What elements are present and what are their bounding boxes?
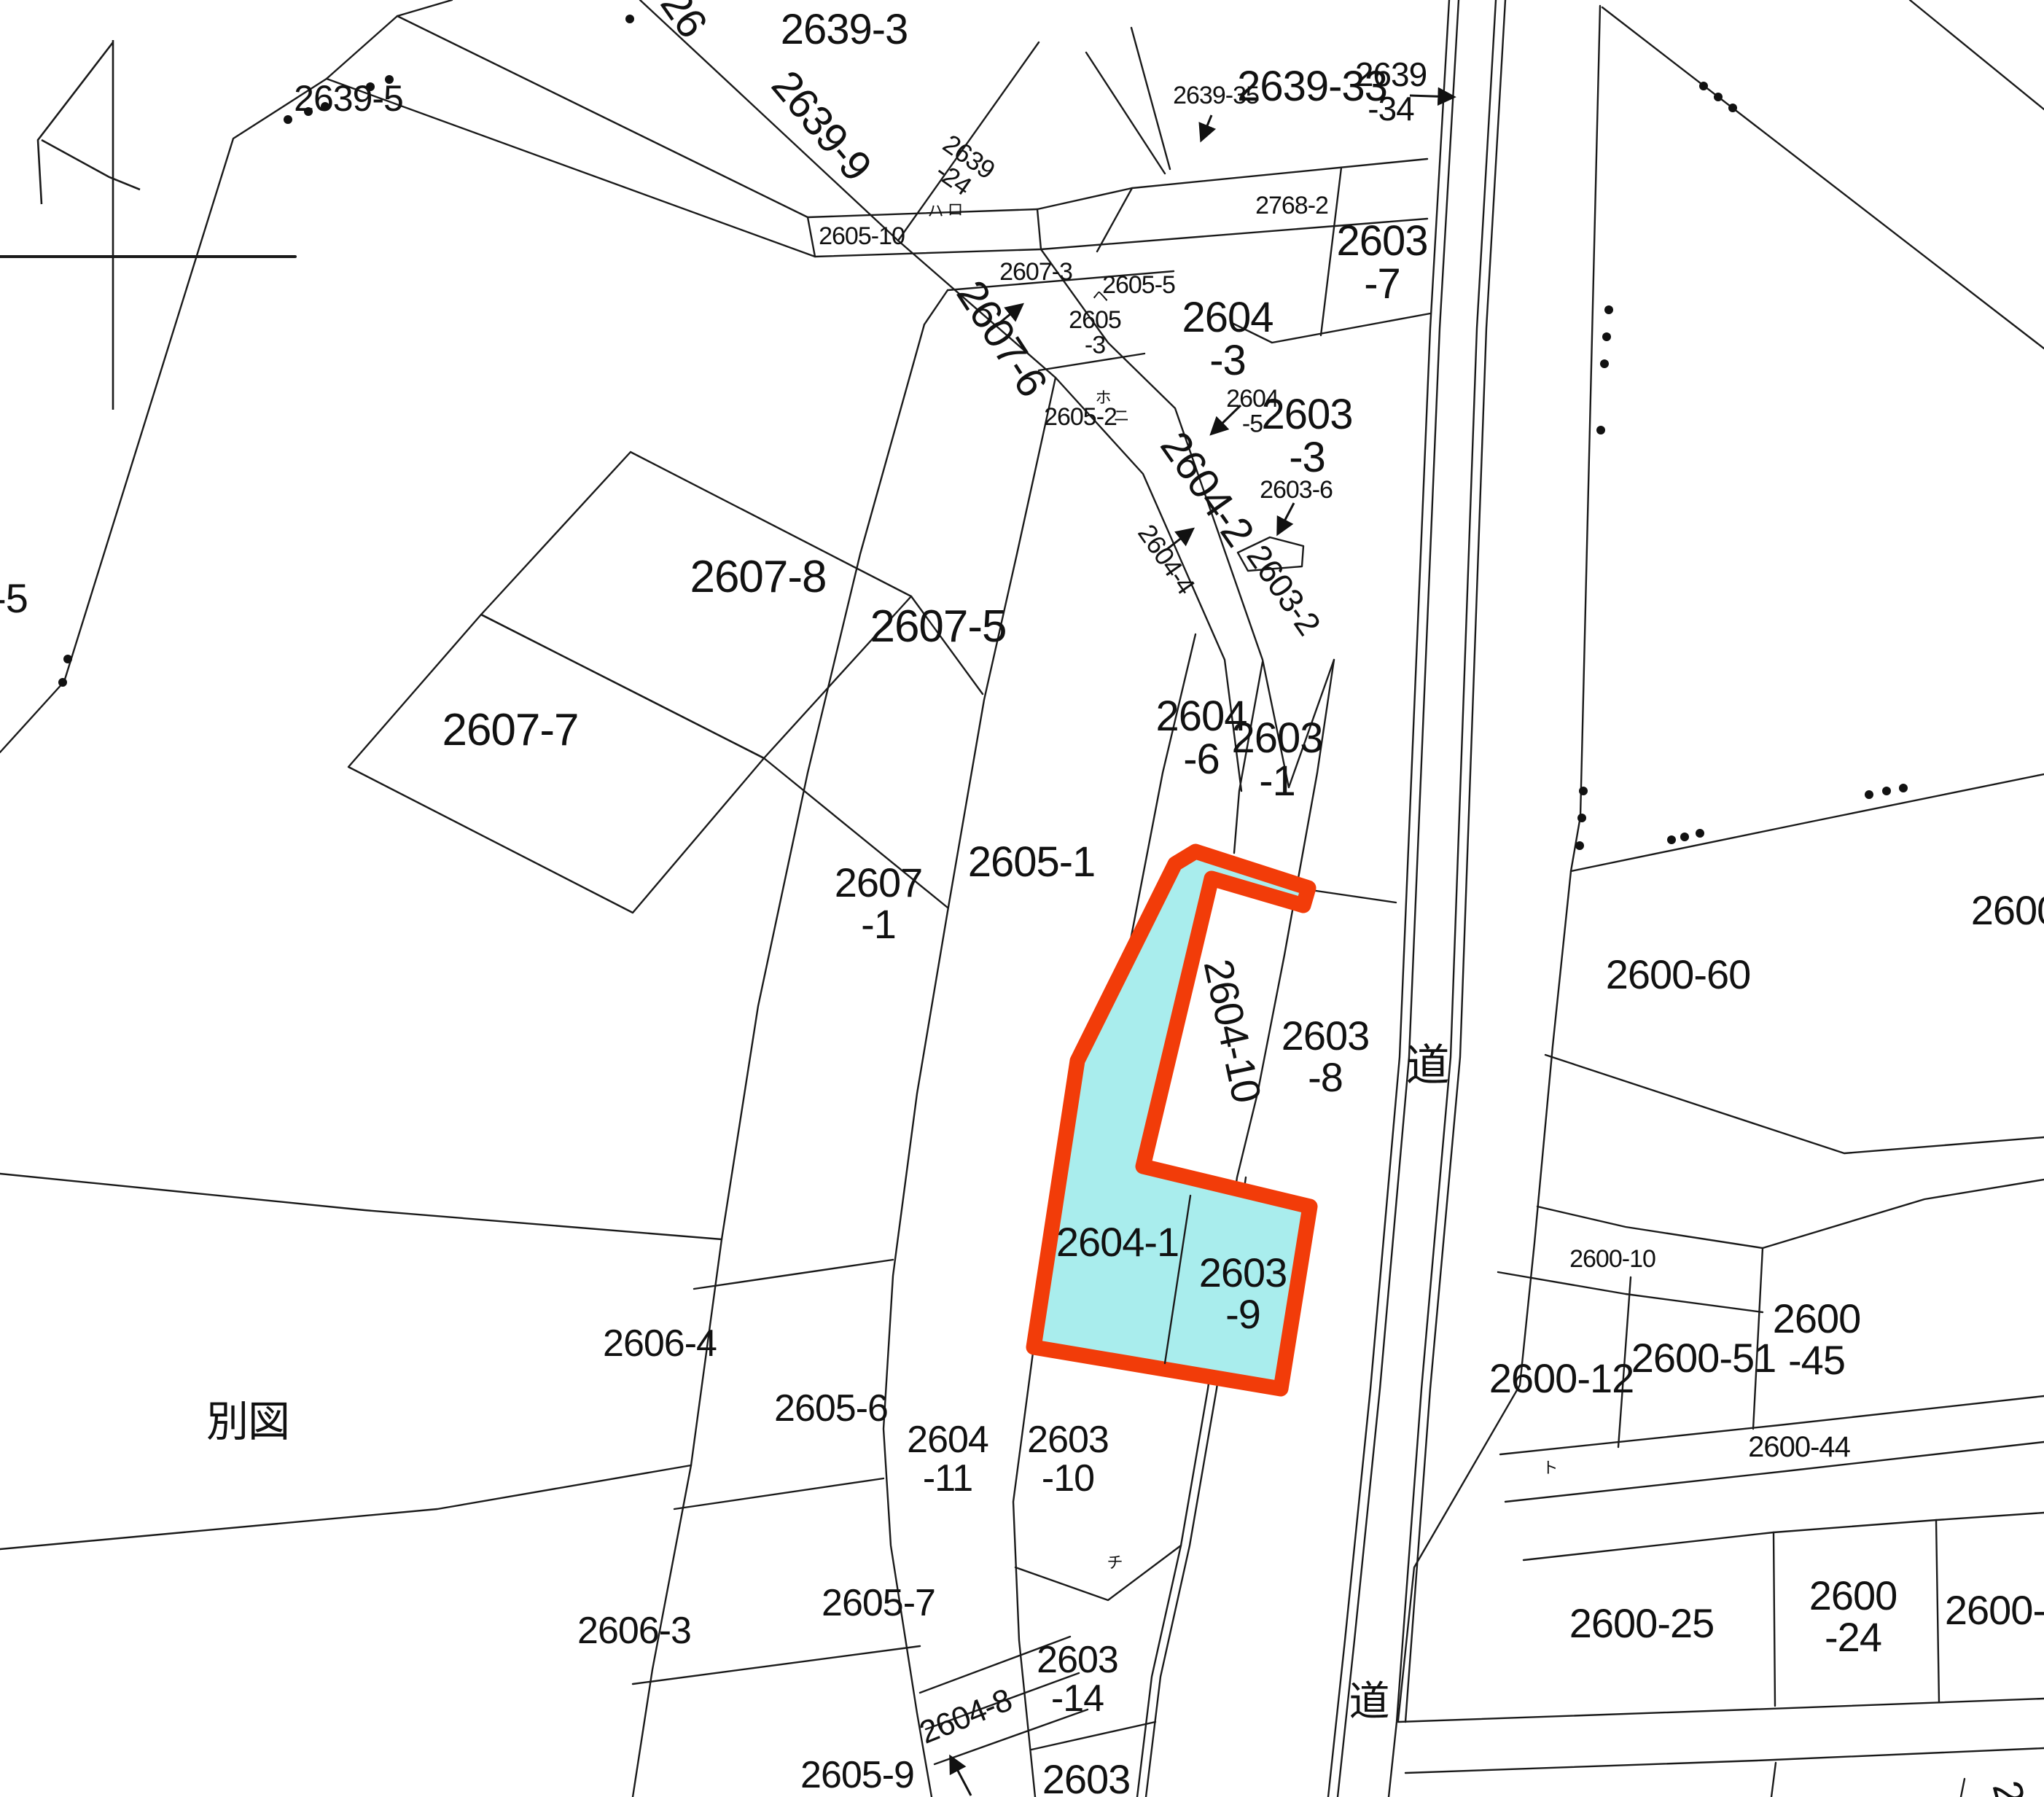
parcel-label-2600-12: 2600-12 <box>1489 1355 1634 1401</box>
cadastral-map-canvas: 2639-3262639-92639-52639-352639-332639-3… <box>0 0 2044 1797</box>
north-arrow-icon <box>0 40 295 410</box>
parcel-label-2600-60: 2600-60 <box>1606 951 1751 997</box>
parcel-label-2768-2: 2768-2 <box>1255 192 1328 219</box>
parcel-label-2606-3: 2606-3 <box>577 1610 691 1652</box>
arrow-2639-35 <box>1201 115 1212 140</box>
parcel-label-2639-3: 2639-3 <box>781 6 908 53</box>
parcel-label-2604-10: 2604-10 <box>1195 955 1271 1106</box>
parcel-label-pt-to: ト <box>1542 1459 1557 1477</box>
parcel-boundary-lines <box>0 0 1430 1797</box>
parcel-label-2600-edge: 2600 <box>1971 887 2044 933</box>
parcel-label-pt-he: ヘ <box>1092 287 1107 305</box>
parcel-label-2600-cut: 2600- <box>1945 1587 2044 1633</box>
parcel-label-2607-8: 2607-8 <box>690 552 826 602</box>
parcel-label-road-top: 道 <box>1406 1041 1449 1090</box>
right-block-lines <box>1398 0 2044 1797</box>
parcel-label-2600-51: 2600-51 <box>1631 1335 1776 1381</box>
parcel-label-2639-34: 2639-34 <box>1355 55 1427 128</box>
parcel-label-2600-45: 2600-45 <box>1773 1295 1861 1383</box>
parcel-label-2603-2: 2603-2 <box>1239 538 1327 642</box>
parcel-label-pt-chi: チ <box>1107 1554 1122 1572</box>
parcel-label-2605-7: 2605-7 <box>822 1582 935 1624</box>
arrow-2603-6 <box>1278 503 1294 534</box>
parcel-label-2639-5: 2639-5 <box>294 78 403 119</box>
arrow-2604-8 <box>951 1757 971 1796</box>
parcel-label-pt-ho: ホ <box>1095 389 1110 407</box>
parcel-label-2600-44: 2600-44 <box>1748 1431 1851 1463</box>
parcel-label-26-partial: 26 <box>651 0 716 46</box>
parcel-label-2600-24: 2600-24 <box>1809 1572 1897 1660</box>
parcel-label-2607-1: 2607-1 <box>835 859 923 947</box>
parcel-label-2603-1: 2603-1 <box>1231 714 1322 805</box>
parcel-label-2604-3: 2604-3 <box>1182 294 1273 384</box>
parcel-label-betsuzu: 別図 <box>206 1398 289 1446</box>
parcel-label-2603-6: 2603-6 <box>1260 476 1333 504</box>
parcel-label-road-bottom: 道 <box>1349 1678 1389 1724</box>
cadastral-map: 2639-3262639-92639-52639-352639-332639-3… <box>0 0 2044 1797</box>
parcel-label-pt-ni: ニ <box>1113 407 1128 425</box>
boundary-point-dots <box>58 15 1908 850</box>
parcel-label-2603-bottom: 2603 <box>1042 1756 1131 1797</box>
parcel-label-2639-9: 2639-9 <box>762 62 881 190</box>
parcel-label-2604-1: 2604-1 <box>1056 1219 1179 1265</box>
arrow-2639-34 <box>1410 95 1454 97</box>
parcel-label-pt-ha: ハ <box>927 202 943 220</box>
parcel-label-2606-4: 2606-4 <box>603 1322 717 1365</box>
parcel-label-2605-9: 2605-9 <box>800 1754 914 1796</box>
parcel-label-2603-3: 2603-3 <box>1261 391 1352 481</box>
parcel-label-pt-ro: ロ <box>947 200 962 219</box>
parcel-label-2639-24: 2639-24 <box>922 128 1000 206</box>
parcel-label-2604-11: 2604-11 <box>907 1419 988 1500</box>
parcel-label-2603-10: 2603-10 <box>1027 1419 1109 1500</box>
highlighted-parcel[interactable] <box>1034 851 1310 1389</box>
parcel-label-2605-5: 2605-5 <box>1102 271 1175 299</box>
parcel-labels: 2639-3262639-92639-52639-352639-332639-3… <box>0 0 2044 1797</box>
parcel-label-2605-10: 2605-10 <box>819 222 905 250</box>
parcel-label-2600-25: 2600-25 <box>1569 1600 1715 1646</box>
parcel-label-2-corner: 2 <box>1984 1776 2035 1797</box>
parcel-label-2600-10: 2600-10 <box>1569 1245 1655 1273</box>
parcel-label-2603-7: 2603-7 <box>1336 217 1427 308</box>
parcel-label-2607-6: 2607-6 <box>948 272 1057 405</box>
parcel-label-minus5-partial: -5 <box>0 575 28 621</box>
parcel-label-2607-3: 2607-3 <box>999 258 1072 286</box>
parcel-label-2607-7: 2607-7 <box>442 705 578 755</box>
parcel-label-2607-5: 2607-5 <box>870 601 1006 652</box>
parcel-label-2605-1: 2605-1 <box>968 838 1096 886</box>
parcel-label-2603-14: 2603-14 <box>1037 1639 1118 1720</box>
parcel-label-2605-3: 2605-3 <box>1069 306 1121 359</box>
parcel-label-2603-8: 2603-8 <box>1282 1013 1370 1100</box>
parcel-label-2605-2: 2605-2 <box>1044 403 1117 431</box>
parcel-label-2605-6: 2605-6 <box>774 1387 888 1430</box>
